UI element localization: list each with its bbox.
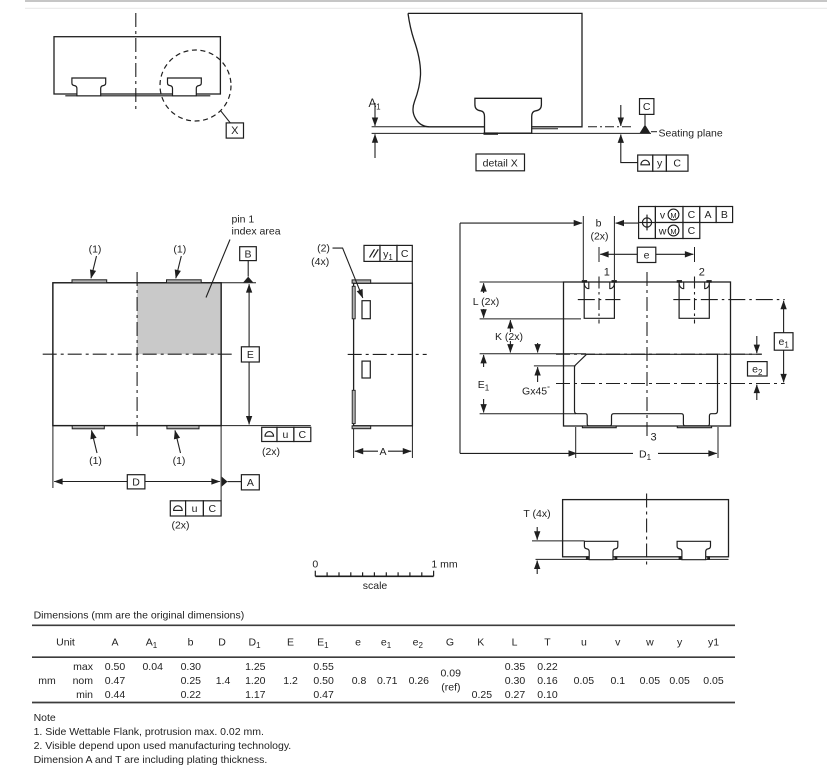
svg-text:0.10: 0.10 (537, 689, 558, 701)
svg-text:0.05: 0.05 (703, 675, 724, 687)
svg-text:M: M (670, 211, 676, 220)
svg-text:w: w (658, 225, 667, 237)
svg-text:L: L (512, 636, 518, 648)
svg-text:K: K (477, 636, 484, 648)
svg-text:B: B (721, 209, 728, 221)
svg-text:C: C (688, 209, 696, 221)
svg-text:E: E (247, 349, 254, 361)
svg-text:(1): (1) (89, 244, 102, 256)
svg-text:u: u (283, 429, 289, 441)
svg-text:Seating plane: Seating plane (659, 127, 723, 139)
svg-text:0.27: 0.27 (505, 689, 526, 701)
svg-text:Unit: Unit (56, 636, 75, 648)
svg-text:detail X: detail X (483, 157, 518, 169)
svg-text:G: G (446, 636, 454, 648)
svg-text:T (4x): T (4x) (523, 508, 550, 520)
svg-text:y: y (657, 158, 663, 170)
svg-text:A: A (111, 636, 118, 648)
svg-text:0.25: 0.25 (472, 689, 493, 701)
svg-text:(4x): (4x) (311, 256, 329, 268)
svg-text:0.05: 0.05 (640, 675, 661, 687)
svg-text:index area: index area (232, 226, 281, 238)
svg-text:nom: nom (73, 675, 94, 687)
svg-text:(2x): (2x) (171, 520, 189, 532)
svg-text:scale: scale (363, 580, 388, 592)
svg-text:C: C (688, 225, 696, 237)
svg-text:1.20: 1.20 (245, 675, 266, 687)
svg-text:2. Visible depend upon used ma: 2. Visible depend upon used manufacturin… (34, 740, 292, 752)
svg-text:0: 0 (312, 559, 318, 571)
svg-text:C: C (401, 248, 409, 260)
svg-text:0.25: 0.25 (181, 675, 202, 687)
svg-text:(ref): (ref) (441, 682, 460, 694)
svg-text:D: D (218, 636, 226, 648)
svg-text:1.25: 1.25 (245, 661, 266, 673)
svg-text:u: u (581, 636, 587, 648)
svg-text:u: u (192, 503, 198, 515)
svg-text:1.17: 1.17 (245, 689, 266, 701)
svg-text:0.50: 0.50 (313, 675, 334, 687)
svg-text:0.47: 0.47 (105, 675, 126, 687)
svg-text:(2x): (2x) (590, 231, 608, 243)
svg-text:pin 1: pin 1 (232, 213, 255, 225)
svg-text:Note: Note (34, 712, 56, 724)
svg-text:0.05: 0.05 (669, 675, 690, 687)
svg-text:0.22: 0.22 (537, 661, 558, 673)
svg-text:min: min (76, 689, 93, 701)
svg-text:0.50: 0.50 (105, 661, 126, 673)
svg-text:0.30: 0.30 (181, 661, 202, 673)
svg-text:C: C (299, 429, 307, 441)
svg-text:1 mm: 1 mm (431, 559, 458, 571)
svg-text:0.09: 0.09 (440, 668, 461, 680)
svg-text:(1): (1) (173, 244, 186, 256)
svg-text:(2): (2) (317, 243, 330, 255)
svg-text:L (2x): L (2x) (473, 296, 499, 308)
svg-text:(1): (1) (89, 455, 102, 467)
svg-text:y: y (677, 636, 683, 648)
svg-text:0.44: 0.44 (105, 689, 126, 701)
svg-text:0.47: 0.47 (313, 689, 334, 701)
svg-text:2: 2 (699, 266, 705, 278)
svg-text:A: A (247, 477, 254, 489)
svg-text:0.22: 0.22 (181, 689, 202, 701)
svg-text:0.71: 0.71 (377, 675, 398, 687)
svg-text:E: E (287, 636, 294, 648)
svg-text:0.16: 0.16 (537, 675, 558, 687)
svg-text:Gx45°: Gx45° (522, 385, 550, 398)
svg-text:T: T (544, 636, 551, 648)
svg-text:C: C (643, 101, 651, 113)
svg-text:b: b (596, 218, 602, 230)
svg-text:0.8: 0.8 (352, 675, 367, 687)
svg-text:Dimension A and T are includin: Dimension A and T are including plating … (34, 754, 268, 766)
svg-text:D: D (132, 476, 140, 488)
svg-text:0.35: 0.35 (505, 661, 526, 673)
svg-text:K (2x): K (2x) (495, 331, 523, 343)
svg-text:b: b (188, 636, 194, 648)
svg-text:0.26: 0.26 (409, 675, 430, 687)
svg-text:0.55: 0.55 (313, 661, 334, 673)
svg-text:(2x): (2x) (262, 446, 280, 458)
svg-text:3: 3 (650, 431, 656, 443)
svg-text:1: 1 (604, 266, 610, 278)
svg-text:max: max (73, 661, 94, 673)
svg-text:(1): (1) (173, 455, 186, 467)
svg-text:0.04: 0.04 (142, 661, 163, 673)
svg-text:v: v (660, 209, 666, 221)
svg-text:C: C (673, 158, 681, 170)
svg-text:X: X (231, 125, 239, 137)
svg-text:1. Side Wettable Flank, protru: 1. Side Wettable Flank, protrusion max. … (34, 726, 264, 738)
svg-text:0.1: 0.1 (610, 675, 625, 687)
svg-text:e: e (644, 249, 650, 261)
svg-text:Dimensions (mm are the origina: Dimensions (mm are the original dimensio… (34, 610, 245, 622)
svg-text:0.30: 0.30 (505, 675, 526, 687)
svg-text:1.4: 1.4 (216, 675, 231, 687)
svg-text:e: e (355, 636, 361, 648)
svg-text:mm: mm (38, 675, 56, 687)
svg-text:v: v (615, 636, 621, 648)
svg-text:A: A (379, 446, 386, 458)
svg-text:1.2: 1.2 (283, 675, 298, 687)
svg-text:w: w (645, 636, 654, 648)
svg-text:0.05: 0.05 (574, 675, 595, 687)
svg-text:C: C (208, 503, 216, 515)
svg-text:B: B (244, 248, 251, 260)
svg-text:y1: y1 (708, 636, 719, 648)
svg-text:M: M (670, 227, 676, 236)
svg-text:A: A (704, 209, 711, 221)
